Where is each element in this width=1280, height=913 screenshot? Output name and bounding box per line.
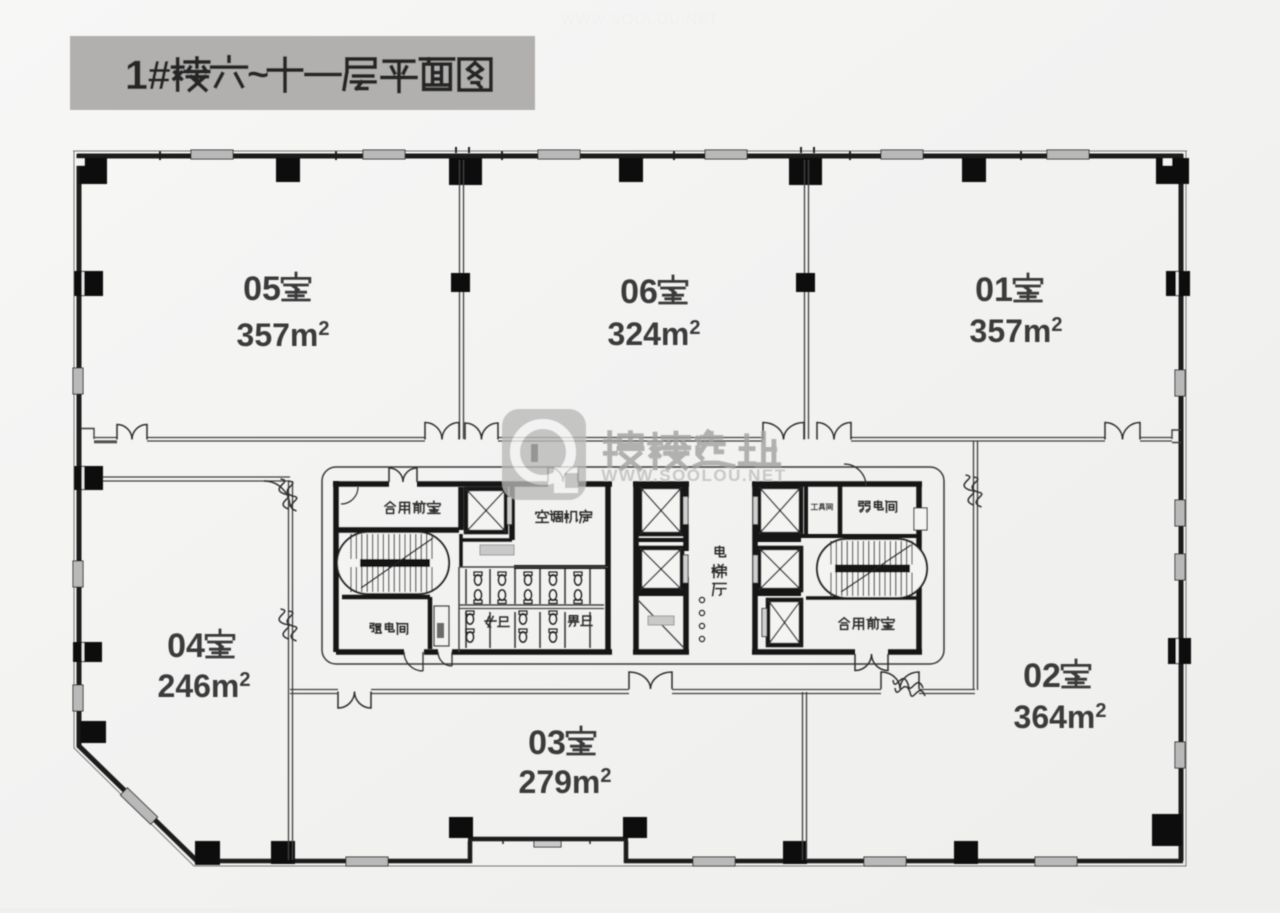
svg-text:04: 04 — [167, 627, 205, 665]
svg-text:246m2: 246m2 — [158, 668, 251, 704]
svg-text:01: 01 — [975, 271, 1013, 309]
svg-text:279m2: 279m2 — [519, 764, 612, 800]
svg-text:357m2: 357m2 — [970, 313, 1063, 349]
svg-text:02: 02 — [1023, 657, 1061, 695]
svg-text:364m2: 364m2 — [1014, 699, 1107, 735]
svg-text:1#: 1# — [125, 52, 171, 98]
svg-text:WWW.SOOLOU.NET: WWW.SOOLOU.NET — [561, 11, 719, 28]
svg-text:357m2: 357m2 — [237, 317, 330, 353]
svg-text:324m2: 324m2 — [608, 316, 701, 352]
svg-text:05: 05 — [243, 270, 281, 308]
svg-text:~: ~ — [247, 54, 269, 96]
svg-text:03: 03 — [528, 724, 566, 762]
svg-text:06: 06 — [620, 273, 658, 311]
svg-text:WWW.SOOLOU.NET: WWW.SOOLOU.NET — [601, 466, 786, 485]
